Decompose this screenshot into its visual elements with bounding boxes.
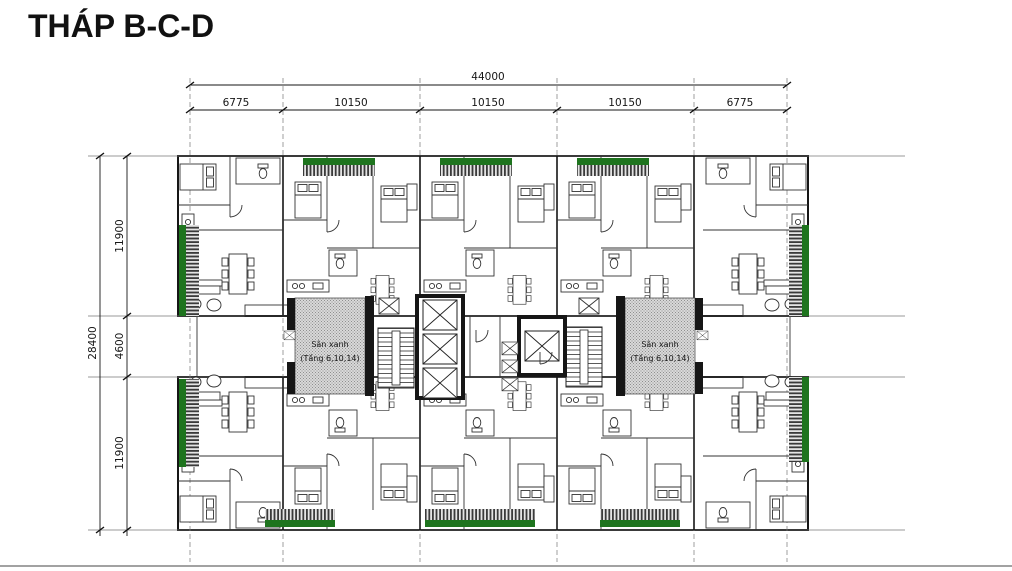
- balcony-green: [600, 520, 680, 527]
- balcony-green: [265, 520, 335, 527]
- page-title: THÁP B-C-D: [28, 8, 214, 44]
- balcony-green: [802, 225, 809, 316]
- dim-segment-depth: 11900: [114, 219, 126, 252]
- green-yard-label-line1: Sân xanh: [641, 340, 678, 349]
- floor-plan-canvas: Sân xanh (Tầng 6,10,14) Sân xanh (Tầng 6…: [0, 0, 1012, 571]
- shaft-xbox: [579, 298, 599, 314]
- balcony-green: [577, 158, 649, 165]
- balcony-louver: [600, 509, 680, 520]
- yard-wall: [287, 298, 295, 330]
- green-yard-label-line2: (Tầng 6,10,14): [630, 353, 689, 363]
- dim-total-depth: 28400: [87, 326, 99, 359]
- staircase-left: [378, 328, 414, 388]
- shaft-xbox: [502, 360, 518, 373]
- staircase-right: [566, 327, 602, 387]
- elevator-shaft: [423, 334, 457, 364]
- page-background: [0, 0, 1012, 571]
- dim-segment-depth: 4600: [114, 333, 126, 360]
- dim-segment-width: 10150: [471, 97, 504, 109]
- dim-segment-width: 10150: [334, 97, 367, 109]
- balcony-green: [440, 158, 512, 165]
- balcony-louver: [577, 165, 649, 176]
- balcony-green: [802, 377, 809, 462]
- balcony-green: [179, 379, 186, 467]
- balcony-green: [425, 520, 535, 527]
- shaft-xbox: [697, 331, 708, 340]
- balcony-louver: [440, 165, 512, 176]
- elevator-shaft: [525, 331, 559, 361]
- green-yard-label-line1: Sân xanh: [311, 340, 348, 349]
- elevator-shaft: [423, 300, 457, 330]
- elevator-shaft: [423, 368, 457, 398]
- shaft-xbox: [502, 378, 518, 391]
- dim-segment-width: 6775: [223, 97, 250, 109]
- shaft-xbox: [284, 331, 295, 340]
- yard-wall: [365, 296, 374, 396]
- balcony-louver: [789, 377, 802, 462]
- shaft-xbox: [502, 342, 518, 355]
- dim-segment-width: 6775: [727, 97, 754, 109]
- balcony-louver: [186, 225, 199, 316]
- balcony-louver: [425, 509, 535, 520]
- green-yard-label-line2: (Tầng 6,10,14): [300, 353, 359, 363]
- green-yard-left: Sân xanh (Tầng 6,10,14): [284, 296, 374, 396]
- green-yard-right: Sân xanh (Tầng 6,10,14): [616, 296, 708, 396]
- yard-wall: [616, 296, 625, 396]
- balcony-green: [179, 225, 186, 316]
- shaft-xbox: [379, 298, 399, 314]
- dim-total-width: 44000: [471, 71, 504, 83]
- yard-wall: [287, 362, 295, 394]
- balcony-louver: [265, 509, 335, 520]
- balcony-louver: [186, 379, 199, 467]
- yard-wall: [695, 362, 703, 394]
- dim-segment-width: 10150: [608, 97, 641, 109]
- yard-wall: [695, 298, 703, 330]
- balcony-louver: [789, 225, 802, 316]
- dim-segment-depth: 11900: [114, 436, 126, 469]
- balcony-green: [303, 158, 375, 165]
- balcony-louver: [303, 165, 375, 176]
